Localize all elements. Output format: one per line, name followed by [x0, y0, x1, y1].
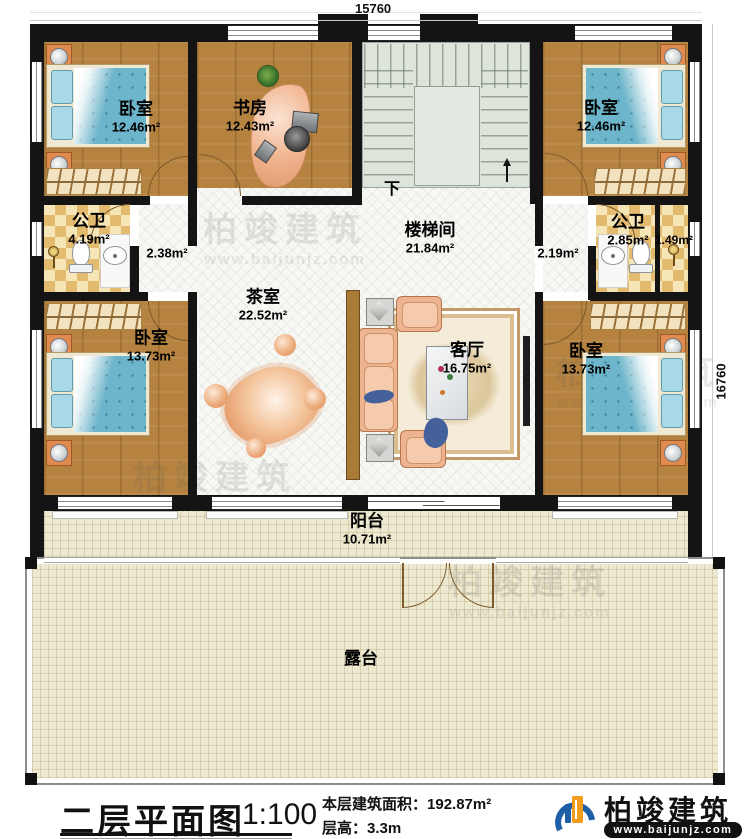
room-label-tea-room: 茶室 22.52m² — [239, 287, 287, 322]
terrace-boundary — [25, 557, 725, 785]
table-lamp-icon — [369, 301, 389, 321]
floor-plan-canvas: 柏竣建筑 www.baijunjz.com 柏竣建筑 www.baijunjz.… — [0, 0, 750, 839]
room-name: 公卫 — [68, 211, 109, 231]
plant-icon — [258, 66, 278, 86]
window-sill — [206, 511, 348, 519]
room-name: 楼梯间 — [405, 220, 456, 240]
room-label-study: 书房 12.43m² — [226, 98, 274, 133]
window — [689, 330, 701, 428]
window — [689, 62, 701, 142]
dimension-line-top — [30, 20, 702, 21]
toilet-tank — [69, 264, 93, 273]
stair-treads-right — [481, 70, 528, 186]
room-name: 卧室 — [127, 328, 175, 348]
wardrobe — [46, 168, 142, 195]
pillow — [51, 394, 73, 428]
floor-cushion — [204, 384, 228, 408]
room-name: 阳台 — [343, 511, 391, 531]
company-url: www.baijunjz.com — [604, 822, 742, 838]
wall-pier — [420, 14, 478, 42]
title-underline — [60, 833, 292, 836]
dimension-line-right — [712, 24, 713, 557]
wall-interior — [590, 292, 688, 301]
room-area: 10.71m² — [343, 531, 391, 546]
terrace-corner-post — [713, 557, 725, 569]
stair-arrowhead-icon — [503, 158, 511, 166]
floor-drain-icon — [48, 246, 59, 257]
room-name: 露台 — [344, 649, 378, 669]
stair-direction-arrow — [506, 164, 508, 182]
door-leaf — [402, 563, 404, 608]
wall-interior — [44, 292, 148, 301]
room-area: 13.73m² — [127, 348, 175, 363]
room-area: 2.85m² — [607, 232, 648, 247]
room-name: 卧室 — [577, 98, 625, 118]
pillow — [661, 106, 683, 140]
window — [212, 496, 342, 510]
room-area: 4.19m² — [68, 231, 109, 246]
floor-cushion — [246, 438, 266, 458]
sliding-door-balcony — [368, 496, 500, 510]
window — [558, 496, 672, 510]
wall-interior — [530, 42, 543, 204]
room-area: 13.73m² — [562, 361, 610, 376]
seat-cushion — [364, 399, 394, 430]
door-leaf — [492, 563, 494, 608]
sink-drain-dot — [611, 254, 615, 258]
room-label-bedroom-tr: 卧室 12.46m² — [577, 98, 625, 133]
floor-cushion — [304, 388, 326, 410]
wardrobe — [46, 303, 142, 330]
drain-stem — [53, 257, 55, 268]
wall-interior — [188, 42, 197, 204]
dimension-top-label: 15760 — [355, 1, 391, 16]
toilet-tank — [629, 264, 653, 273]
wall-interior — [535, 292, 543, 495]
pillow — [661, 70, 683, 104]
wall-interior — [130, 246, 139, 292]
area-label-shower: 1.49m² — [655, 233, 693, 247]
balcony-parapet — [44, 557, 400, 563]
room-area: 16.75m² — [443, 360, 491, 375]
company-logo-icon — [550, 790, 598, 838]
wardrobe — [590, 303, 686, 330]
sink-drain-dot — [113, 254, 117, 258]
window — [575, 25, 672, 41]
area-label-hall-right: 2.19m² — [537, 246, 578, 261]
bed-sheet — [74, 356, 146, 432]
wardrobe — [594, 168, 686, 195]
room-area: 21.84m² — [405, 240, 456, 255]
company-logo — [550, 790, 598, 838]
floor-terrace — [32, 564, 718, 778]
room-area: 22.52m² — [239, 307, 287, 322]
wall-interior — [352, 42, 362, 205]
terrace-corner-post — [713, 773, 725, 785]
pillow — [51, 358, 73, 392]
room-label-terrace: 露台 — [344, 649, 378, 669]
window-sill — [552, 511, 678, 519]
seat-cushion — [364, 333, 394, 364]
room-name: 书房 — [226, 98, 274, 118]
pillow — [661, 394, 683, 428]
floor-area-value: 192.87m² — [427, 796, 491, 813]
window — [31, 62, 43, 142]
tv — [523, 336, 530, 426]
room-label-living-room: 客厅 16.75m² — [443, 340, 491, 375]
table-flower — [440, 390, 445, 395]
pillow — [51, 106, 73, 140]
floor-height-value: 3.3m — [367, 820, 401, 837]
lamp-icon — [664, 444, 682, 462]
room-area: 12.43m² — [226, 118, 274, 133]
pillow — [661, 358, 683, 392]
nightstand — [660, 440, 686, 466]
room-label-bath-left: 公卫 4.19m² — [68, 211, 109, 246]
room-name: 公卫 — [607, 212, 648, 232]
window — [228, 25, 318, 41]
lamp-icon — [50, 444, 68, 462]
window — [31, 222, 43, 256]
room-name: 客厅 — [443, 340, 491, 360]
window — [31, 330, 43, 428]
wall-interior — [188, 204, 197, 246]
stair-treads-left — [364, 70, 413, 186]
floor-height-text: 层高：3.3m — [322, 817, 401, 838]
terrace-corner-post — [25, 557, 37, 569]
drawing-scale: 1:100 — [242, 798, 317, 832]
room-label-bedroom-bl: 卧室 13.73m² — [127, 328, 175, 363]
floor-height-label: 层高： — [322, 820, 367, 837]
office-chair — [284, 126, 310, 152]
floor-area-label: 本层建筑面积： — [322, 796, 427, 813]
table-lamp-icon — [369, 437, 389, 457]
wall-interior — [655, 204, 660, 294]
window-sill — [52, 511, 178, 519]
bed-mattress — [74, 356, 146, 432]
stair-landing — [414, 86, 480, 186]
room-name: 茶室 — [239, 287, 287, 307]
window — [368, 25, 420, 41]
wall-partition-screen — [346, 290, 360, 480]
wall-interior — [242, 196, 352, 205]
stair-down-label: 下 — [384, 175, 400, 199]
room-area: 12.46m² — [577, 118, 625, 133]
area-label-hall-left: 2.38m² — [146, 246, 187, 261]
nightstand — [46, 440, 72, 466]
room-label-bedroom-br: 卧室 13.73m² — [562, 341, 610, 376]
room-label-balcony: 阳台 10.71m² — [343, 511, 391, 546]
drain-stem — [673, 255, 675, 266]
wall-interior — [535, 204, 543, 246]
wall-pier — [318, 14, 368, 42]
floor-area-text: 本层建筑面积：192.87m² — [322, 793, 491, 814]
seat-cushion — [402, 302, 438, 328]
balcony-parapet — [496, 557, 688, 563]
terrace-corner-post — [25, 773, 37, 785]
side-table — [366, 434, 394, 462]
room-name: 卧室 — [562, 341, 610, 361]
floor-cushion — [274, 334, 296, 356]
room-label-stairwell: 楼梯间 21.84m² — [405, 220, 456, 255]
pillow — [51, 70, 73, 104]
dimension-right-label: 16760 — [714, 363, 729, 399]
wall-interior — [44, 196, 150, 205]
side-table — [366, 298, 394, 326]
window — [58, 496, 172, 510]
room-area: 12.46m² — [112, 119, 160, 134]
sofa — [358, 328, 398, 432]
armchair — [396, 296, 442, 332]
room-name: 卧室 — [112, 99, 160, 119]
room-label-bedroom-tl: 卧室 12.46m² — [112, 99, 160, 134]
room-label-bath-right: 公卫 2.85m² — [607, 212, 648, 247]
wall-interior — [188, 292, 197, 495]
